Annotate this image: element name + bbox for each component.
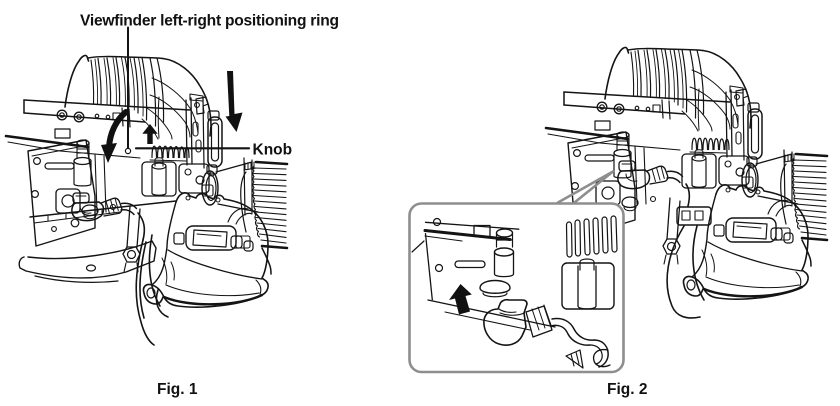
- svg-text:Viewfinder left-right position: Viewfinder left-right positioning ring: [80, 13, 339, 30]
- svg-text:Knob: Knob: [253, 141, 293, 158]
- svg-text:Fig. 2: Fig. 2: [607, 381, 647, 398]
- svg-text:Fig. 1: Fig. 1: [157, 381, 198, 398]
